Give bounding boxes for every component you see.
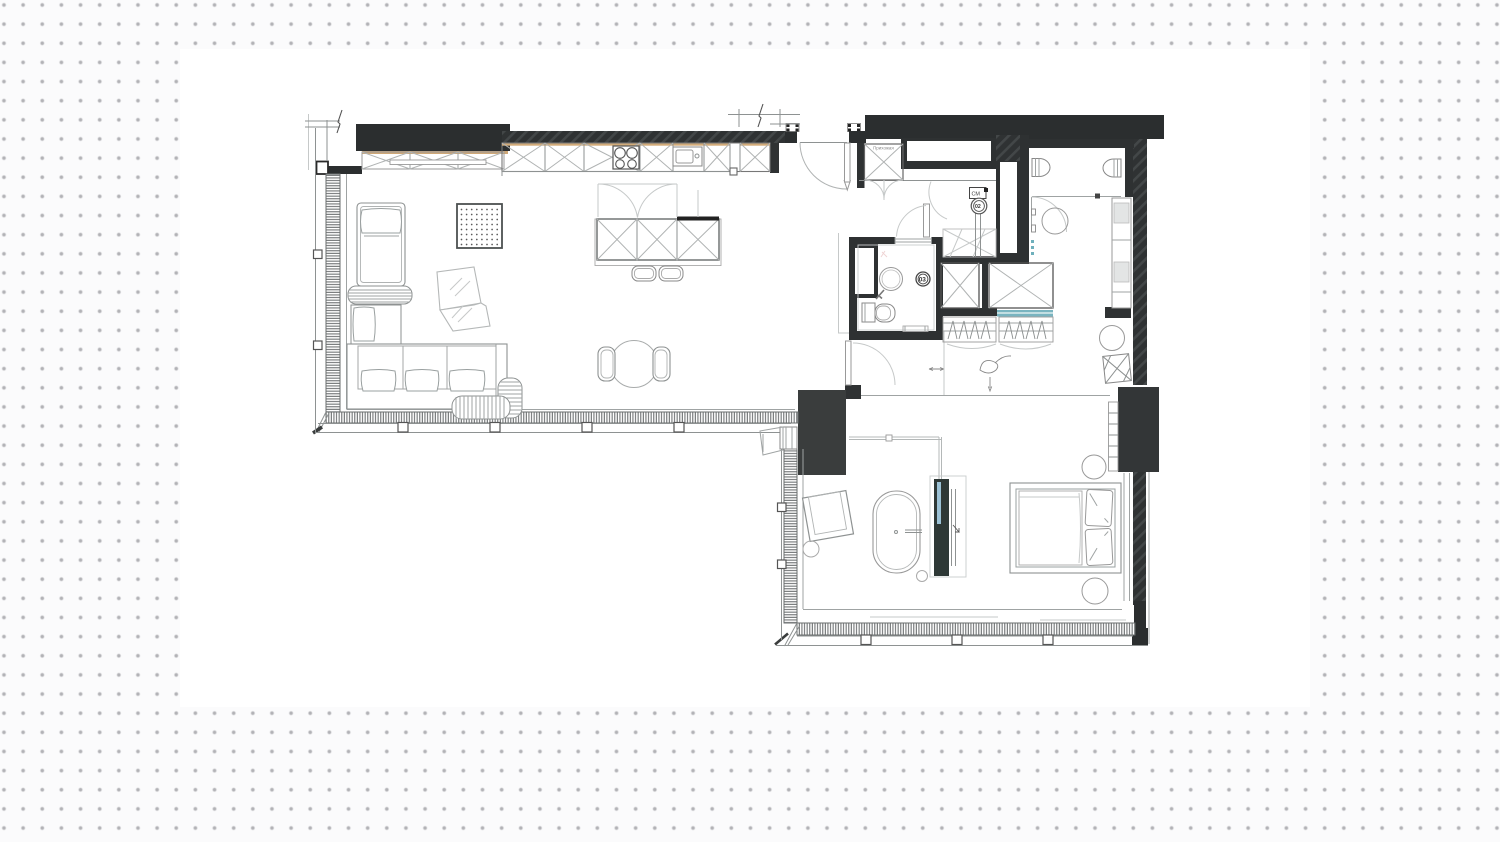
svg-text:Прихожая: Прихожая [873,146,894,151]
svg-text:02: 02 [975,204,981,210]
svg-text:03: 03 [919,277,927,284]
svg-text:СМ: СМ [972,192,981,198]
